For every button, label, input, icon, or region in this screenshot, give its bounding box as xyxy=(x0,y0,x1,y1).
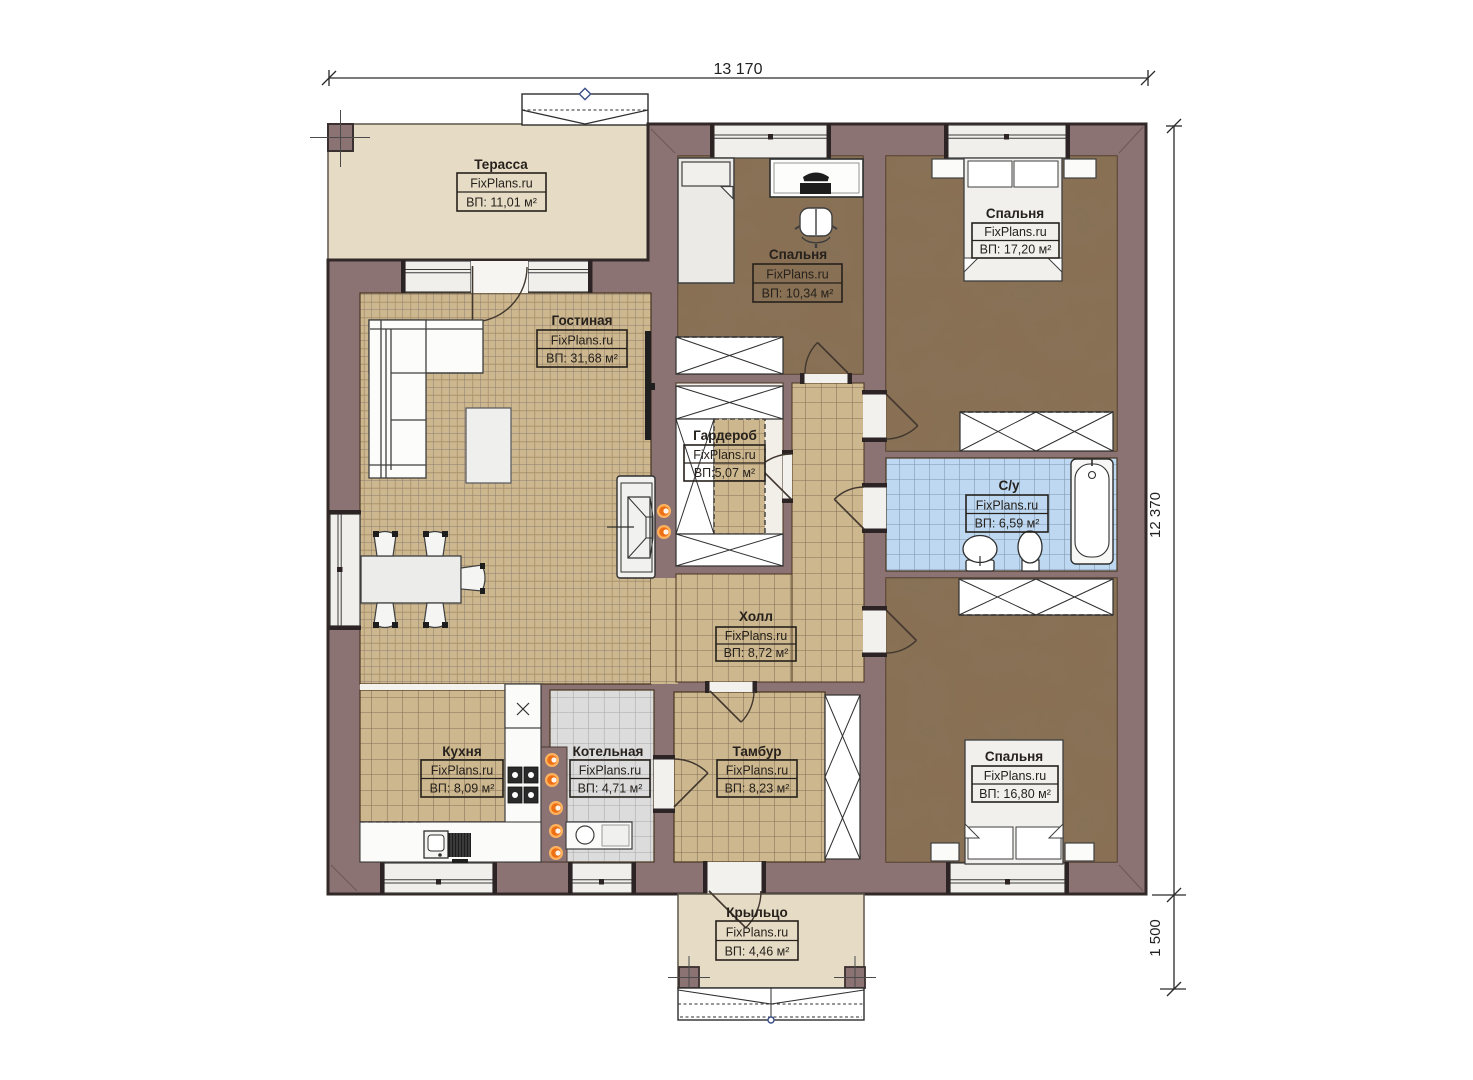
svg-text:ВП: 11,01 м²: ВП: 11,01 м² xyxy=(466,196,537,210)
svg-text:Тамбур: Тамбур xyxy=(733,744,782,759)
svg-text:FixPlans.ru: FixPlans.ru xyxy=(579,764,642,778)
svg-text:ВП: 6,59 м²: ВП: 6,59 м² xyxy=(975,517,1040,531)
svg-text:FixPlans.ru: FixPlans.ru xyxy=(984,769,1047,783)
svg-text:Котельная: Котельная xyxy=(573,744,644,759)
svg-text:FixPlans.ru: FixPlans.ru xyxy=(431,764,494,778)
svg-text:FixPlans.ru: FixPlans.ru xyxy=(766,268,829,282)
svg-text:ВП: 16,80 м²: ВП: 16,80 м² xyxy=(979,787,1051,801)
svg-text:FixPlans.ru: FixPlans.ru xyxy=(726,764,789,778)
svg-text:Спальня: Спальня xyxy=(769,247,827,262)
svg-text:С/у: С/у xyxy=(998,478,1020,493)
svg-text:Спальня: Спальня xyxy=(985,749,1043,764)
svg-text:FixPlans.ru: FixPlans.ru xyxy=(984,225,1047,239)
svg-text:ВП:5,07 м²: ВП:5,07 м² xyxy=(694,466,755,480)
svg-text:12 370: 12 370 xyxy=(1147,492,1164,538)
svg-text:13 170: 13 170 xyxy=(714,61,763,78)
svg-text:FixPlans.ru: FixPlans.ru xyxy=(726,926,789,940)
svg-text:FixPlans.ru: FixPlans.ru xyxy=(551,334,614,348)
svg-text:1 500: 1 500 xyxy=(1147,919,1164,957)
svg-text:ВП: 8,72 м²: ВП: 8,72 м² xyxy=(724,646,789,660)
svg-text:Терасса: Терасса xyxy=(474,157,528,172)
svg-text:ВП: 10,34 м²: ВП: 10,34 м² xyxy=(762,287,834,301)
svg-text:FixPlans.ru: FixPlans.ru xyxy=(725,629,788,643)
svg-text:FixPlans.ru: FixPlans.ru xyxy=(976,499,1039,513)
svg-text:ВП: 4,46 м²: ВП: 4,46 м² xyxy=(725,945,790,959)
svg-text:FixPlans.ru: FixPlans.ru xyxy=(693,448,756,462)
svg-text:Гардероб: Гардероб xyxy=(693,428,757,443)
svg-text:ВП: 31,68 м²: ВП: 31,68 м² xyxy=(546,352,618,366)
svg-text:ВП: 4,71 м²: ВП: 4,71 м² xyxy=(578,782,643,796)
svg-text:FixPlans.ru: FixPlans.ru xyxy=(470,177,533,191)
svg-text:Гостиная: Гостиная xyxy=(551,313,612,328)
svg-text:ВП: 17,20 м²: ВП: 17,20 м² xyxy=(980,243,1052,257)
svg-text:Кухня: Кухня xyxy=(442,744,481,759)
svg-text:ВП: 8,23 м²: ВП: 8,23 м² xyxy=(725,782,790,796)
svg-text:ВП: 8,09 м²: ВП: 8,09 м² xyxy=(430,782,495,796)
svg-text:Спальня: Спальня xyxy=(986,206,1044,221)
svg-text:Крыльцо: Крыльцо xyxy=(726,905,787,920)
svg-text:Холл: Холл xyxy=(739,609,773,624)
